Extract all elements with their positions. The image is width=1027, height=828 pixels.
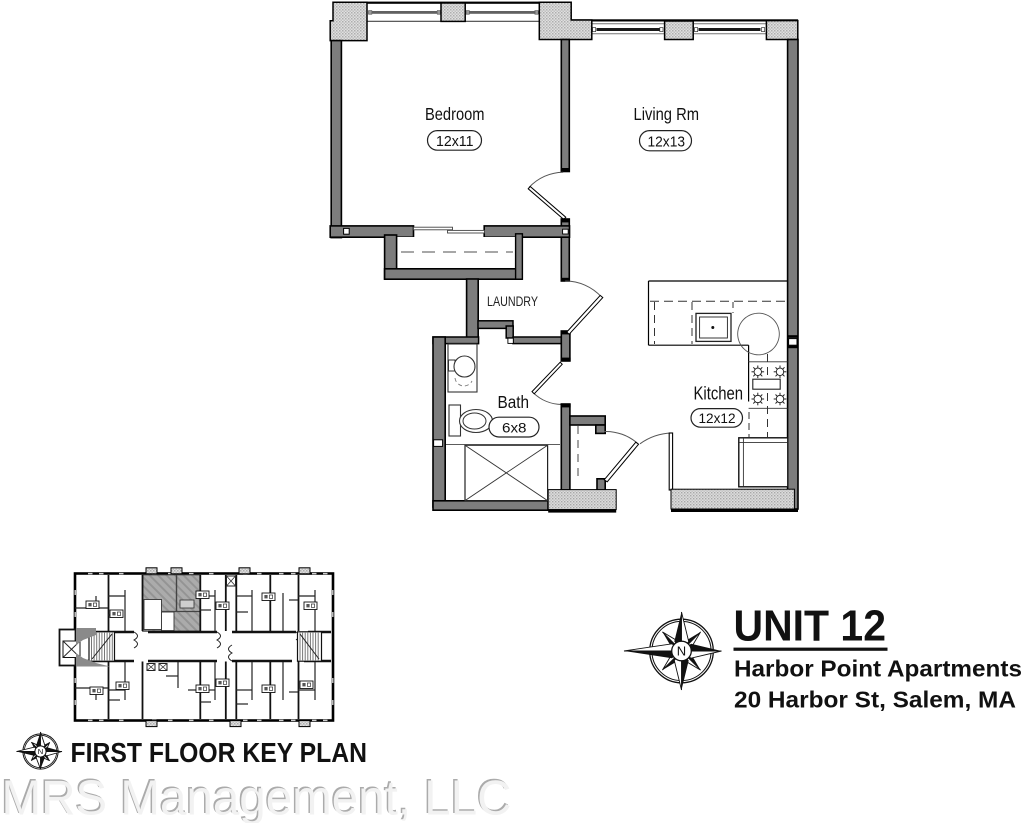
svg-text:MRS Management, LLC: MRS Management, LLC <box>2 772 512 824</box>
svg-text:12x11: 12x11 <box>436 134 474 150</box>
svg-text:12x13: 12x13 <box>648 134 686 150</box>
svg-text:Bedroom: Bedroom <box>425 104 485 124</box>
svg-text:FIRST FLOOR KEY PLAN: FIRST FLOOR KEY PLAN <box>71 737 368 768</box>
svg-text:N: N <box>38 747 43 756</box>
svg-text:Harbor Point Apartments: Harbor Point Apartments <box>734 655 1022 681</box>
svg-text:20 Harbor St, Salem, MA: 20 Harbor St, Salem, MA <box>734 686 1016 712</box>
svg-text:Kitchen: Kitchen <box>694 383 744 404</box>
svg-text:UNIT 12: UNIT 12 <box>734 602 887 651</box>
svg-text:12x12: 12x12 <box>699 411 736 427</box>
svg-text:Bath: Bath <box>498 392 530 412</box>
svg-text:Living Rm: Living Rm <box>634 104 700 124</box>
svg-text:LAUNDRY: LAUNDRY <box>487 294 538 309</box>
svg-text:N: N <box>677 644 686 659</box>
svg-text:6x8: 6x8 <box>502 420 527 436</box>
